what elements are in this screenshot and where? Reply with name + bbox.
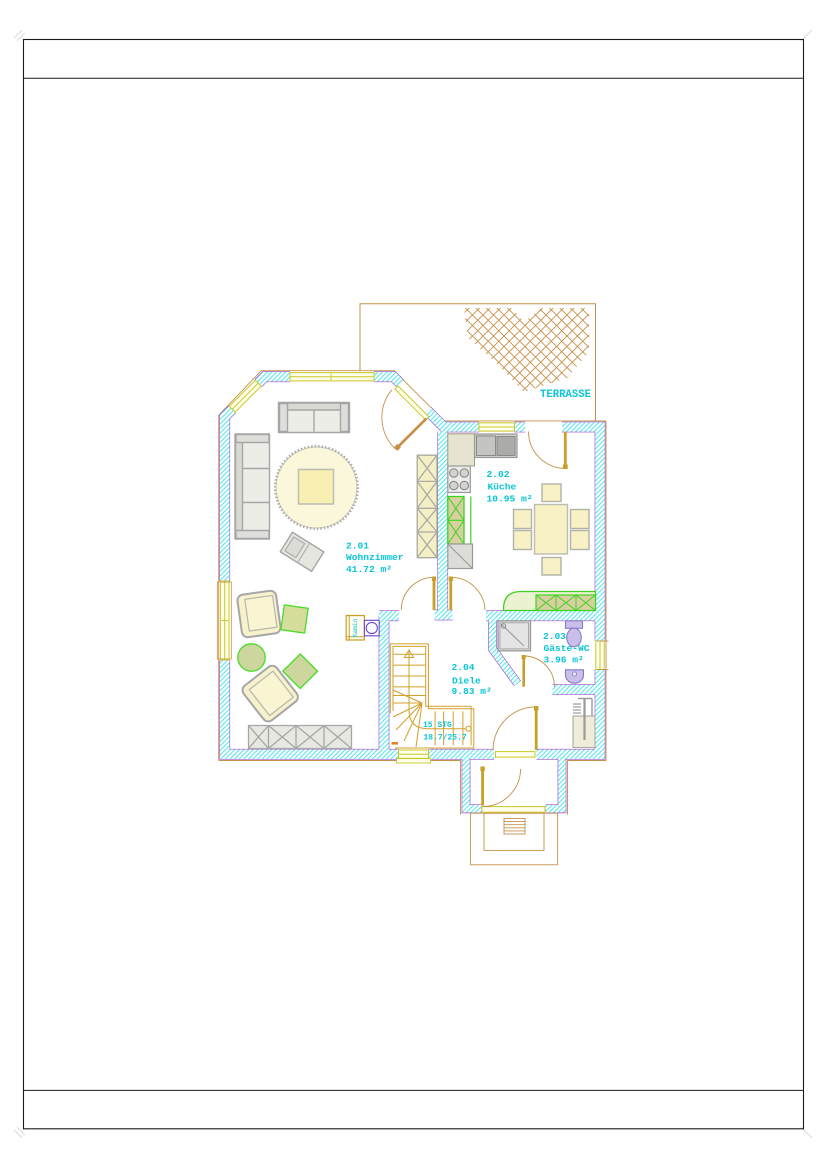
svg-text:3.96 m²: 3.96 m²: [544, 655, 584, 666]
svg-text:TERRASSE: TERRASSE: [540, 389, 591, 401]
svg-text:9.83 m²: 9.83 m²: [452, 686, 492, 697]
svg-text:2.04: 2.04: [452, 662, 475, 673]
svg-text:Küche: Küche: [488, 482, 517, 493]
svg-text:Diele: Diele: [452, 675, 481, 686]
svg-text:10.95 m²: 10.95 m²: [487, 493, 533, 504]
svg-text:2.02: 2.02: [487, 469, 510, 480]
svg-text:Gäste-WC: Gäste-WC: [544, 643, 590, 654]
svg-text:2.01: 2.01: [346, 541, 369, 552]
svg-text:18.7/25.7: 18.7/25.7: [424, 734, 467, 743]
svg-text:15 STG: 15 STG: [423, 721, 452, 730]
svg-text:Wohnzimmer: Wohnzimmer: [346, 552, 404, 563]
svg-text:Kamin: Kamin: [352, 618, 359, 637]
svg-text:2.03: 2.03: [543, 631, 566, 642]
svg-text:41.72 m²: 41.72 m²: [346, 564, 392, 575]
